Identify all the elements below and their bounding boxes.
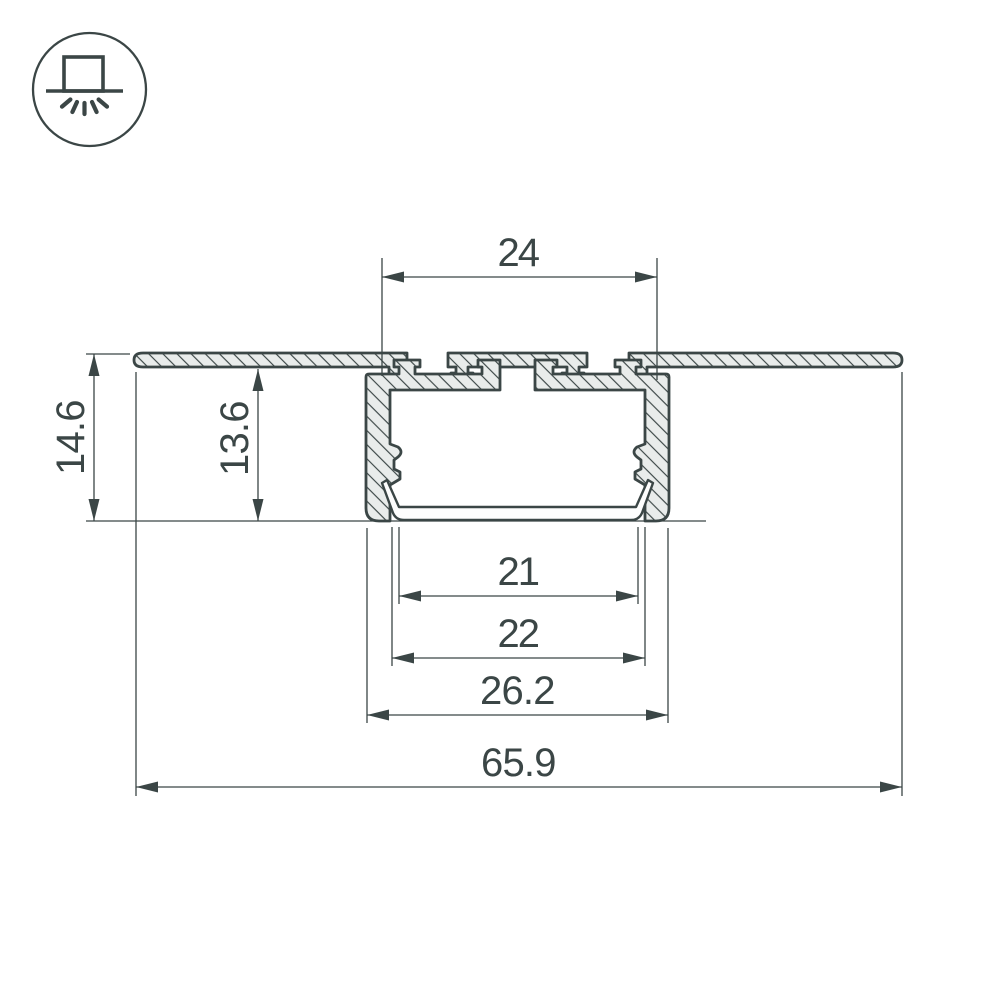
dim-label-overall-height: 14.6: [49, 399, 93, 475]
arrowhead: [623, 653, 645, 664]
arrowhead: [880, 782, 902, 793]
arrowhead: [646, 710, 668, 721]
dim-recess-depth: 13.6: [213, 369, 264, 521]
icon-light-rays: [62, 100, 107, 115]
arrowhead: [253, 499, 264, 521]
dim-label-tray-width: 21: [498, 550, 541, 594]
dim-label-body-width: 26.2: [480, 669, 556, 713]
dim-label-top-width: 24: [498, 231, 541, 275]
dim-label-overall-width: 65.9: [481, 741, 557, 785]
technical-drawing: 24 14.6 13.6 21: [0, 0, 1001, 1001]
arrowhead: [89, 499, 100, 521]
dim-label-recess-depth: 13.6: [213, 400, 257, 476]
arrowhead: [367, 710, 389, 721]
icon-fixture-box: [64, 57, 103, 91]
drawing-canvas: 24 14.6 13.6 21: [0, 0, 1001, 1001]
arrowhead: [89, 354, 100, 376]
dim-label-inner-width: 22: [498, 612, 541, 656]
arrowhead: [253, 369, 264, 391]
arrowhead: [136, 782, 158, 793]
recessed-mount-light-icon: [33, 33, 146, 146]
arrowhead: [616, 591, 638, 602]
dim-tray-width: 21: [399, 527, 638, 604]
arrowhead: [635, 272, 657, 283]
arrowhead: [382, 272, 404, 283]
profile-bottom-tray: [382, 480, 653, 520]
arrowhead: [399, 591, 421, 602]
arrowhead: [392, 653, 414, 664]
